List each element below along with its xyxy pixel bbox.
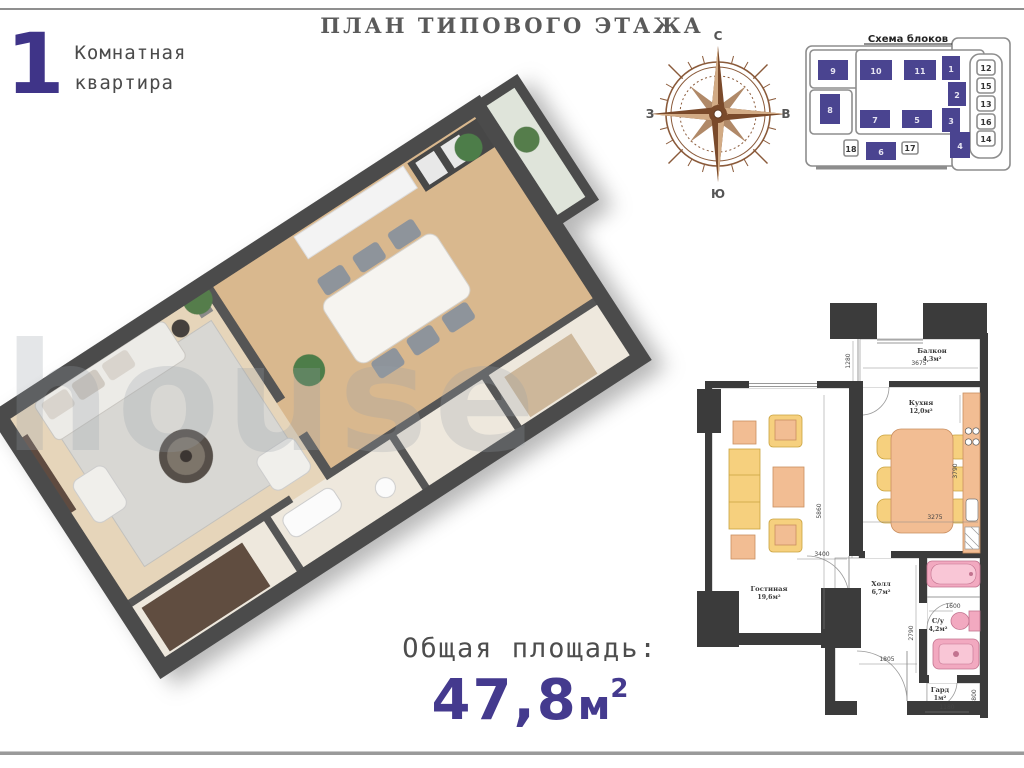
block-12: 12 — [980, 64, 991, 73]
block-2: 2 — [954, 91, 960, 100]
wall-living-kitchen — [849, 381, 863, 556]
dim-kitchen-width: 3275 — [927, 514, 942, 521]
top-rule — [0, 8, 1024, 10]
block-9: 9 — [830, 67, 836, 76]
block-17: 17 — [904, 144, 915, 153]
room-balcony-area: 4,3м² — [923, 356, 942, 363]
dim-bath-height: 2790 — [908, 625, 915, 640]
coffee-table — [773, 467, 804, 507]
dim-kitchen-height: 3790 — [952, 463, 959, 478]
block-11: 11 — [914, 67, 926, 76]
iso-apartment — [0, 77, 679, 668]
bottom-rule — [0, 751, 1024, 755]
compass-north-label: С — [714, 29, 723, 43]
room-hall-area: 6,7м² — [872, 589, 891, 596]
toilet-bowl — [951, 613, 969, 630]
room-living-name: Гостиная — [750, 585, 787, 593]
compass-east-label: В — [781, 107, 790, 121]
wall-living-bottom — [737, 633, 823, 645]
total-area-block: Общая площадь: 47,8м2 — [340, 633, 720, 733]
room-bath-area: 4,2м² — [929, 626, 948, 633]
iso-floorplan-3d — [0, 75, 670, 695]
armchair-cushion — [775, 420, 796, 440]
total-area-label: Общая площадь: — [340, 633, 720, 664]
block-3: 3 — [948, 117, 954, 126]
sofa — [729, 449, 760, 529]
sink — [966, 499, 978, 521]
floorplan-2d: 3675 1280 5860 3400 3790 3275 1805 2790 … — [697, 303, 1024, 735]
armchair-cushion — [775, 525, 796, 545]
wall-pillar — [821, 588, 861, 648]
total-area-sup: 2 — [610, 674, 628, 704]
block-7: 7 — [872, 116, 878, 125]
room-ward-area: 1м² — [934, 695, 947, 702]
dim-ward-width: 1180 — [939, 704, 954, 711]
block-4: 4 — [957, 142, 963, 151]
dim-ward-height: 800 — [971, 689, 978, 701]
room-ward-name: Гард — [931, 686, 950, 694]
block-scheme-title: Схема блоков — [868, 33, 948, 45]
block-scheme: Схема блоков 9 10 11 7 5 8 6 1 2 3 4 12 … — [802, 30, 1017, 180]
block-14: 14 — [980, 135, 992, 144]
dishwasher — [965, 527, 979, 549]
block-16: 16 — [980, 118, 992, 127]
compass-rose — [650, 46, 786, 182]
block-18: 18 — [845, 145, 857, 154]
poster: ПЛАН ТИПОВОГО ЭТАЖА 1 Комнатная квартира — [0, 0, 1024, 768]
wall-pillar — [697, 389, 721, 433]
apartment-type-line1: Комнатная — [74, 38, 186, 68]
block-15: 15 — [980, 82, 992, 91]
block-13: 13 — [980, 100, 991, 109]
block-6: 6 — [878, 148, 884, 157]
side-table — [733, 421, 756, 444]
block-5: 5 — [914, 116, 920, 125]
room-balcony-name: Балкон — [917, 347, 946, 355]
total-area-value: 47,8м2 — [340, 668, 720, 733]
dim-hall-width: 1805 — [879, 656, 894, 663]
room-hall-name: Холл — [871, 580, 891, 588]
side-table — [731, 535, 755, 559]
room-living-area: 19,6м² — [757, 594, 780, 601]
block-8: 8 — [827, 106, 833, 115]
wall-hall-left — [825, 648, 835, 708]
room-kitchen-area: 12,0м² — [909, 408, 932, 415]
dining-table — [891, 429, 953, 533]
total-area-number: 47,8 — [432, 668, 578, 733]
toilet-tank — [969, 611, 980, 631]
dim-bath-width: 1600 — [945, 603, 960, 610]
wall-pillar — [923, 303, 987, 339]
dim-living-height: 5860 — [816, 503, 823, 518]
wall-right — [980, 333, 988, 718]
total-area-unit: м — [578, 683, 611, 729]
wall-pillar — [830, 303, 877, 339]
compass-south-label: Ю — [711, 187, 725, 201]
room-kitchen-name: Кухня — [909, 399, 934, 407]
dim-living-width: 3400 — [814, 551, 829, 558]
block-10: 10 — [870, 67, 882, 76]
block-1: 1 — [948, 65, 954, 74]
dim-balcony-height: 1280 — [845, 353, 852, 368]
room-bath-name: С/у — [932, 617, 945, 625]
